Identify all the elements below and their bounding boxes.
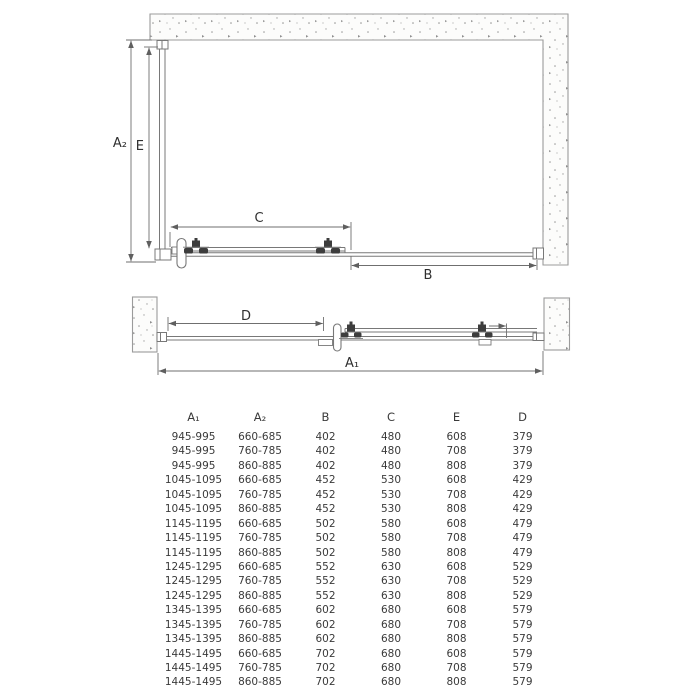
table-cell: 660-685 — [227, 603, 293, 617]
table-cell: 552 — [293, 574, 358, 588]
column-header: E — [424, 410, 489, 425]
table-cell: 402 — [293, 430, 358, 444]
table-cell: 1445-1495 — [160, 675, 227, 689]
table-cell: 608 — [424, 560, 489, 574]
table-cell: 429 — [489, 502, 556, 516]
table-cell: 860-885 — [227, 459, 293, 473]
table-cell: 760-785 — [227, 661, 293, 675]
table-cell: 680 — [358, 675, 424, 689]
front-view: A₂ E C B — [113, 14, 568, 283]
table-cell: 502 — [293, 517, 358, 531]
table-cell: 579 — [489, 661, 556, 675]
table-cell: 660-685 — [227, 560, 293, 574]
spec-sheet: A₂ E C B — [0, 0, 700, 700]
table-cell: 608 — [424, 603, 489, 617]
plan-fixed-panel — [345, 329, 537, 333]
table-cell: 708 — [424, 531, 489, 545]
table-cell: 529 — [489, 589, 556, 603]
plan-view: D A₁ — [133, 297, 570, 375]
table-cell: 760-785 — [227, 444, 293, 458]
table-cell: 1045-1095 — [160, 473, 227, 487]
table-cell: 1245-1295 — [160, 589, 227, 603]
table-cell: 530 — [358, 473, 424, 487]
table-cell: 808 — [424, 546, 489, 560]
table-cell: 479 — [489, 517, 556, 531]
table-cell: 480 — [358, 444, 424, 458]
table-cell: 579 — [489, 603, 556, 617]
dimension-label-a1: A₁ — [345, 356, 359, 371]
table-cell: 945-995 — [160, 459, 227, 473]
table-cell: 452 — [293, 502, 358, 516]
dimension-b — [351, 256, 537, 270]
table-cell: 808 — [424, 502, 489, 516]
table-cell: 945-995 — [160, 444, 227, 458]
table-cell: 660-685 — [227, 647, 293, 661]
column-header: D — [489, 410, 556, 425]
table-cell: 708 — [424, 488, 489, 502]
table-cell: 402 — [293, 444, 358, 458]
table-cell: 579 — [489, 632, 556, 646]
table-cell: 529 — [489, 560, 556, 574]
table-cell: 379 — [489, 430, 556, 444]
table-cell: 702 — [293, 675, 358, 689]
table-cell: 680 — [358, 603, 424, 617]
table-cell: 502 — [293, 531, 358, 545]
table-cell: 608 — [424, 430, 489, 444]
table-cell: 1245-1295 — [160, 574, 227, 588]
table-cell: 1345-1395 — [160, 603, 227, 617]
corner-bracket — [155, 249, 171, 260]
table-cell: 579 — [489, 675, 556, 689]
table-cell: 402 — [293, 459, 358, 473]
table-cell: 630 — [358, 589, 424, 603]
table-cell: 808 — [424, 675, 489, 689]
column-header: B — [293, 410, 358, 425]
table-cell: 480 — [358, 430, 424, 444]
table-header-row: A₁A₂BCED — [160, 410, 556, 425]
table-cell: 708 — [424, 574, 489, 588]
table-cell: 860-885 — [227, 675, 293, 689]
table-cell: 1345-1395 — [160, 618, 227, 632]
table-cell: 579 — [489, 618, 556, 632]
table-cell: 608 — [424, 647, 489, 661]
table-cell: 708 — [424, 661, 489, 675]
dimension-e — [144, 47, 158, 248]
table-cell: 479 — [489, 531, 556, 545]
dimension-label-e: E — [136, 139, 144, 154]
table-cell: 379 — [489, 459, 556, 473]
table-cell: 580 — [358, 531, 424, 545]
table-cell: 1345-1395 — [160, 632, 227, 646]
table-cell: 630 — [358, 574, 424, 588]
technical-drawing: A₂ E C B — [0, 0, 700, 400]
table-cell: 529 — [489, 574, 556, 588]
dimension-label-a2: A₂ — [113, 136, 127, 151]
plan-wall-bracket-left — [157, 333, 167, 342]
table-cell: 630 — [358, 560, 424, 574]
plan-wall-bracket-right — [533, 333, 544, 341]
table-cell: 1145-1195 — [160, 546, 227, 560]
dimension-label-b: B — [424, 268, 433, 283]
table-cell: 1045-1095 — [160, 502, 227, 516]
table-cell: 760-785 — [227, 531, 293, 545]
wall-bracket-right — [533, 248, 544, 259]
table-cell: 580 — [358, 517, 424, 531]
plan-handle-knob — [319, 324, 342, 351]
table-cell: 579 — [489, 647, 556, 661]
table-cell: 660-685 — [227, 517, 293, 531]
table-cell: 1445-1495 — [160, 647, 227, 661]
table-cell: 660-685 — [227, 473, 293, 487]
table-cell: 945-995 — [160, 430, 227, 444]
bottom-rail — [171, 248, 533, 257]
table-cell: 480 — [358, 459, 424, 473]
table-cell: 760-785 — [227, 488, 293, 502]
table-cell: 702 — [293, 661, 358, 675]
table-cell: 602 — [293, 618, 358, 632]
table-cell: 1445-1495 — [160, 661, 227, 675]
table-cell: 808 — [424, 589, 489, 603]
table-cell: 1245-1295 — [160, 560, 227, 574]
table-cell: 602 — [293, 603, 358, 617]
table-cell: 379 — [489, 444, 556, 458]
table-cell: 808 — [424, 632, 489, 646]
table-cell: 502 — [293, 546, 358, 560]
table-cell: 760-785 — [227, 618, 293, 632]
table-cell: 1145-1195 — [160, 531, 227, 545]
table-cell: 429 — [489, 473, 556, 487]
table-cell: 660-685 — [227, 430, 293, 444]
table-cell: 860-885 — [227, 546, 293, 560]
dimension-label-c: C — [254, 211, 263, 226]
table-cell: 680 — [358, 647, 424, 661]
table-cell: 702 — [293, 647, 358, 661]
handle-knob — [172, 239, 186, 269]
table-cell: 680 — [358, 661, 424, 675]
table-cell: 452 — [293, 473, 358, 487]
column-header: C — [358, 410, 424, 425]
table-cell: 602 — [293, 632, 358, 646]
dimension-label-d: D — [241, 309, 251, 324]
table-cell: 708 — [424, 618, 489, 632]
plan-roller-right — [472, 322, 493, 346]
table-cell: 860-885 — [227, 589, 293, 603]
table-cell: 860-885 — [227, 502, 293, 516]
column-header: A₁ — [160, 410, 227, 425]
table-cell: 580 — [358, 546, 424, 560]
table-cell: 1045-1095 — [160, 488, 227, 502]
table-body: 945-995660-685402480608379945-995760-785… — [160, 430, 556, 690]
table-cell: 808 — [424, 459, 489, 473]
wall-block-left — [133, 297, 158, 352]
table-cell: 530 — [358, 488, 424, 502]
column-header: A₂ — [227, 410, 293, 425]
table-cell: 429 — [489, 488, 556, 502]
table-cell: 608 — [424, 473, 489, 487]
table-cell: 860-885 — [227, 632, 293, 646]
table-cell: 479 — [489, 546, 556, 560]
table-cell: 680 — [358, 618, 424, 632]
left-wall-profile — [157, 40, 168, 249]
table-cell: 680 — [358, 632, 424, 646]
table-cell: 452 — [293, 488, 358, 502]
table-cell: 552 — [293, 589, 358, 603]
table-cell: 552 — [293, 560, 358, 574]
table-cell: 708 — [424, 444, 489, 458]
wall-block-right — [544, 298, 570, 350]
table-cell: 1145-1195 — [160, 517, 227, 531]
table-cell: 608 — [424, 517, 489, 531]
table-cell: 760-785 — [227, 574, 293, 588]
table-cell: 530 — [358, 502, 424, 516]
